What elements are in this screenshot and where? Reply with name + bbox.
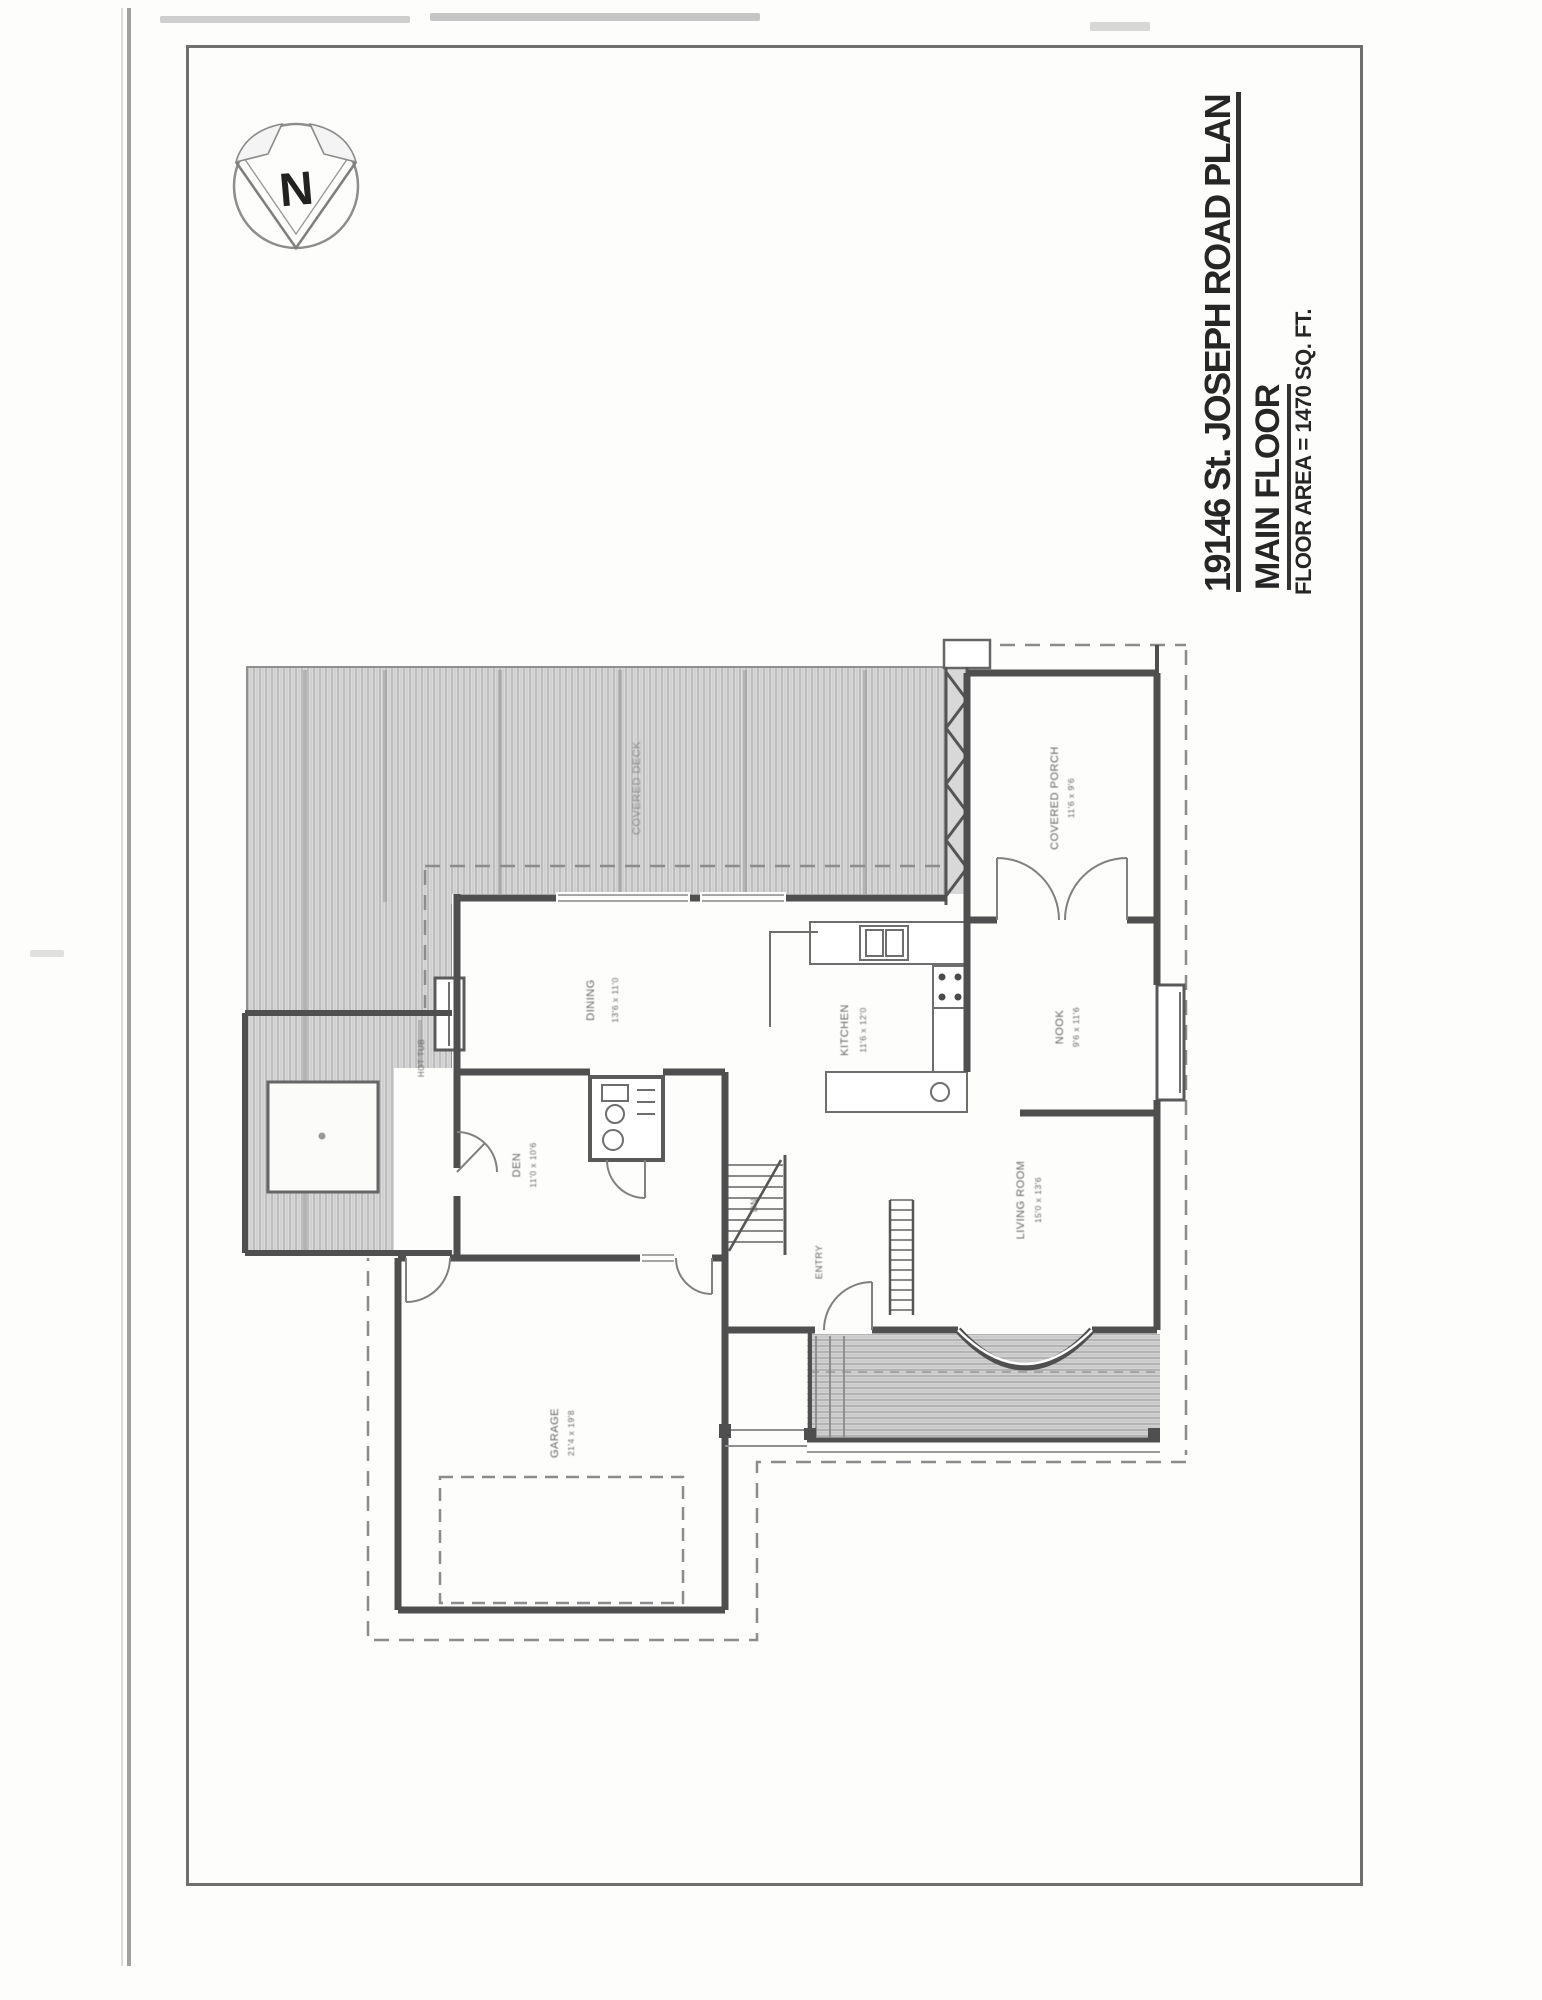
- toilet-tank: [602, 1085, 628, 1101]
- hot-tub-label: HOT TUB: [417, 1039, 426, 1077]
- kitchen-label: KITCHEN: [839, 1004, 851, 1056]
- garage-dims: 21'4 x 19'8: [566, 1410, 576, 1456]
- living-room-dims: 15'0 x 13'6: [1033, 1177, 1043, 1223]
- stove-burner: [939, 974, 946, 981]
- kitchen-island: [826, 1072, 967, 1112]
- nook-label: NOOK: [1054, 1010, 1066, 1045]
- entry-post: [719, 1424, 731, 1438]
- entry-label: ENTRY: [814, 1245, 825, 1280]
- dining-label: DINING: [585, 979, 597, 1021]
- kitchen-sink-bowl: [866, 930, 883, 956]
- stove-burner: [939, 994, 946, 1001]
- dining-dims: 13'6 x 11'0: [610, 977, 620, 1022]
- covered-porch-label: COVERED PORCH: [1049, 746, 1061, 850]
- stove-burner: [955, 994, 962, 1001]
- porch-post: [804, 1428, 816, 1440]
- den-label: DEN: [511, 1153, 523, 1178]
- deck-stair-landing: [944, 640, 990, 668]
- stair-dn-label: DN: [749, 1198, 759, 1212]
- stove: [933, 966, 967, 1008]
- garage-label: GARAGE: [549, 1408, 561, 1458]
- kitchen-dims: 11'6 x 12'0: [858, 1007, 868, 1052]
- covered-porch-dims: 11'6 x 9'6: [1066, 778, 1076, 818]
- dining-window: [556, 892, 690, 904]
- entry-walk-lines: [725, 1430, 807, 1446]
- den-dims: 11'0 x 10'6: [528, 1142, 538, 1187]
- kitchen-sink-bowl: [886, 930, 903, 956]
- stove-burner: [955, 974, 962, 981]
- covered-deck-label: COVERED DECK: [631, 741, 643, 835]
- kitchen-window: [700, 892, 786, 904]
- floor-plan-drawing: COVERED DECK COVERED PORCH 11'6 x 9'6 DI…: [0, 0, 1542, 2000]
- scanned-floor-plan-page: 19146 St. JOSEPH ROAD PLAN MAIN FLOOR FL…: [0, 0, 1542, 2000]
- hot-tub-jet: [319, 1133, 326, 1140]
- living-room-label: LIVING ROOM: [1015, 1161, 1027, 1240]
- porch-post: [1148, 1428, 1160, 1440]
- nook-dims: 9'6 x 11'6: [1071, 1007, 1081, 1047]
- den-window: [640, 1252, 676, 1264]
